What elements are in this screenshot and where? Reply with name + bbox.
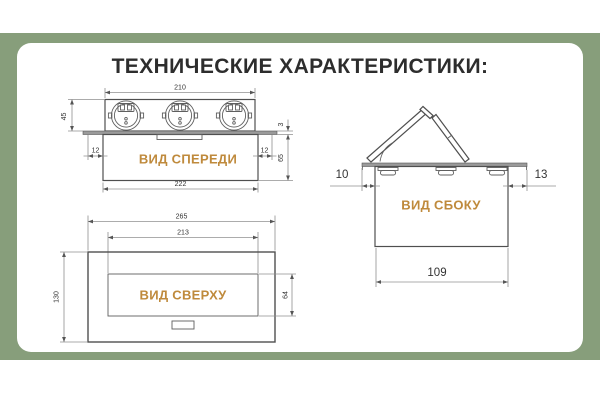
svg-text:12: 12 — [92, 148, 100, 155]
socket-icon — [216, 101, 251, 130]
dim-side-bottom-width: 109 — [376, 248, 508, 287]
svg-text:222: 222 — [175, 181, 187, 188]
svg-text:64: 64 — [283, 291, 290, 299]
dim-top-inner-width: 213 — [108, 230, 258, 274]
svg-text:130: 130 — [54, 291, 61, 303]
dim-front-offset-left: 12 — [84, 135, 108, 161]
infographic-page: ТЕХНИЧЕСКИЕ ХАРАКТЕРИСТИКИ: 210 — [0, 0, 600, 400]
top-view-drawing: 265 213 130 64 — [55, 210, 305, 346]
top-latch — [172, 321, 194, 329]
svg-text:12: 12 — [261, 148, 269, 155]
dim-front-upper-height: 45 — [61, 100, 104, 132]
dim-front-bottom-width: 222 — [103, 181, 258, 193]
top-view-label: ВИД СВЕРХУ — [140, 288, 227, 303]
dim-front-lower-height: 65 — [258, 135, 293, 181]
socket-icon — [108, 101, 143, 130]
side-view-label: ВИД СБОКУ — [401, 198, 481, 213]
svg-text:45: 45 — [61, 113, 68, 121]
page-title: ТЕХНИЧЕСКИЕ ХАРАКТЕРИСТИКИ: — [0, 55, 600, 79]
front-view-drawing: 210 — [58, 82, 304, 198]
socket-icon — [162, 101, 197, 130]
dim-side-offset-right: 13 — [503, 169, 556, 191]
svg-text:265: 265 — [176, 214, 188, 221]
svg-text:109: 109 — [427, 267, 446, 279]
front-view-label: ВИД СПЕРЕДИ — [139, 152, 237, 167]
side-view-drawing: 10 13 109 — [320, 95, 570, 291]
mount-clips — [378, 168, 507, 176]
dim-top-inner-height: 64 — [259, 274, 296, 316]
svg-text:213: 213 — [177, 230, 189, 237]
dim-top-outer-height: 130 — [54, 252, 88, 342]
svg-text:65: 65 — [278, 154, 285, 162]
dim-front-offset-right: 12 — [253, 135, 277, 161]
front-handle — [157, 135, 202, 140]
open-lid-shape — [367, 107, 469, 163]
svg-text:3: 3 — [278, 122, 285, 126]
svg-text:10: 10 — [336, 169, 349, 181]
dim-front-top-width: 210 — [105, 85, 255, 99]
dim-front-plate-thickness: 3 — [277, 120, 293, 135]
svg-text:210: 210 — [174, 85, 186, 92]
svg-text:13: 13 — [535, 169, 548, 181]
dim-side-offset-left: 10 — [330, 168, 380, 191]
